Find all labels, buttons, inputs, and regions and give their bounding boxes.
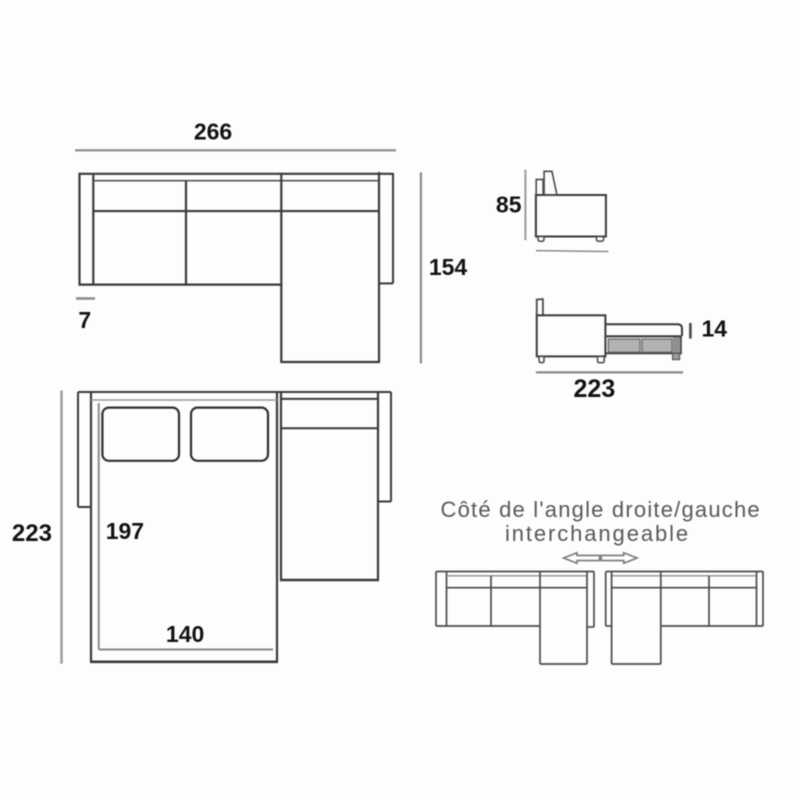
svg-text:197: 197 <box>106 518 144 544</box>
svg-text:223: 223 <box>574 375 616 403</box>
svg-text:154: 154 <box>429 254 468 280</box>
svg-text:7: 7 <box>78 307 91 333</box>
svg-text:14: 14 <box>702 316 728 342</box>
svg-text:266: 266 <box>194 119 232 145</box>
svg-text:223: 223 <box>12 520 52 547</box>
svg-text:Côté de l'angle droite/gauche: Côté de l'angle droite/gauche <box>441 497 761 522</box>
svg-text:interchangeable: interchangeable <box>505 521 690 546</box>
svg-text:140: 140 <box>166 621 204 647</box>
svg-text:85: 85 <box>496 192 522 218</box>
